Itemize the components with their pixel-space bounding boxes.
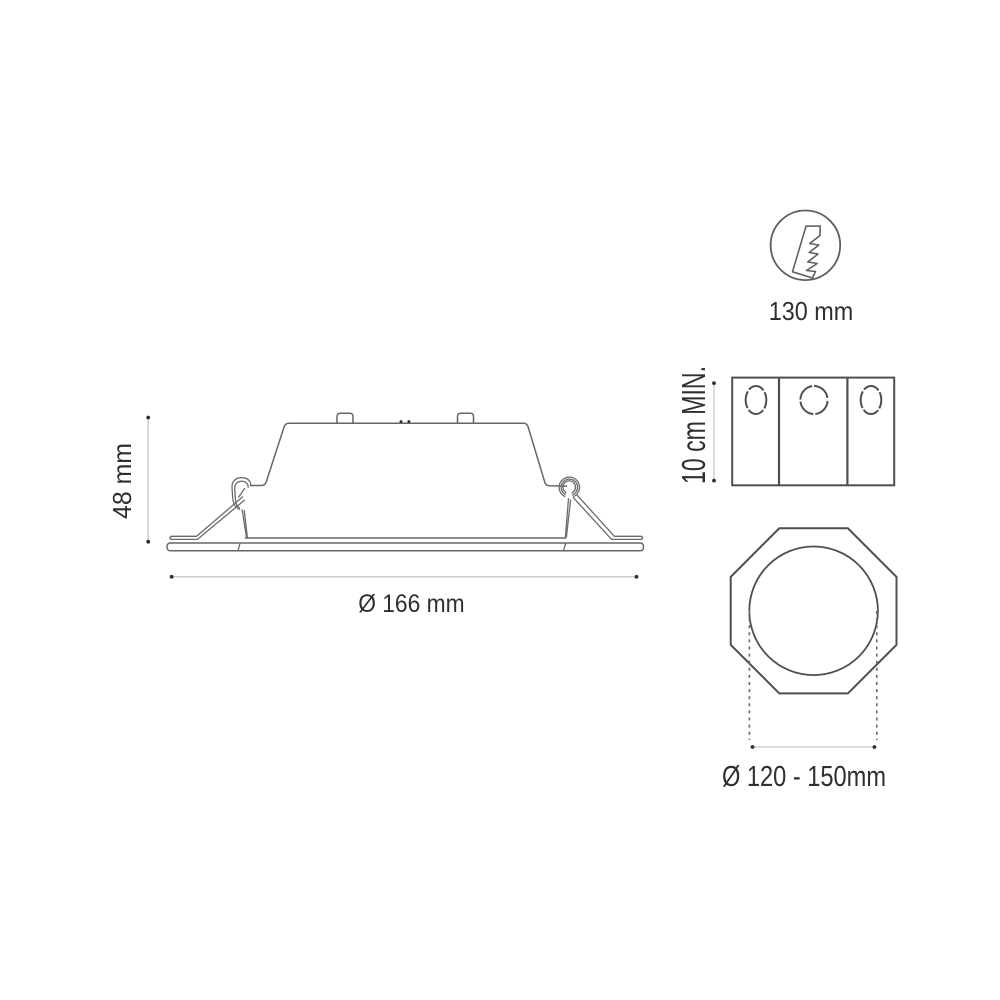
svg-text:Ø 120 - 150mm: Ø 120 - 150mm xyxy=(722,761,886,793)
svg-text:Ø 166 mm: Ø 166 mm xyxy=(358,590,464,618)
svg-text:48 mm: 48 mm xyxy=(107,443,137,519)
svg-text:10 cm MIN.: 10 cm MIN. xyxy=(676,366,713,484)
svg-text:130 mm: 130 mm xyxy=(769,296,854,326)
